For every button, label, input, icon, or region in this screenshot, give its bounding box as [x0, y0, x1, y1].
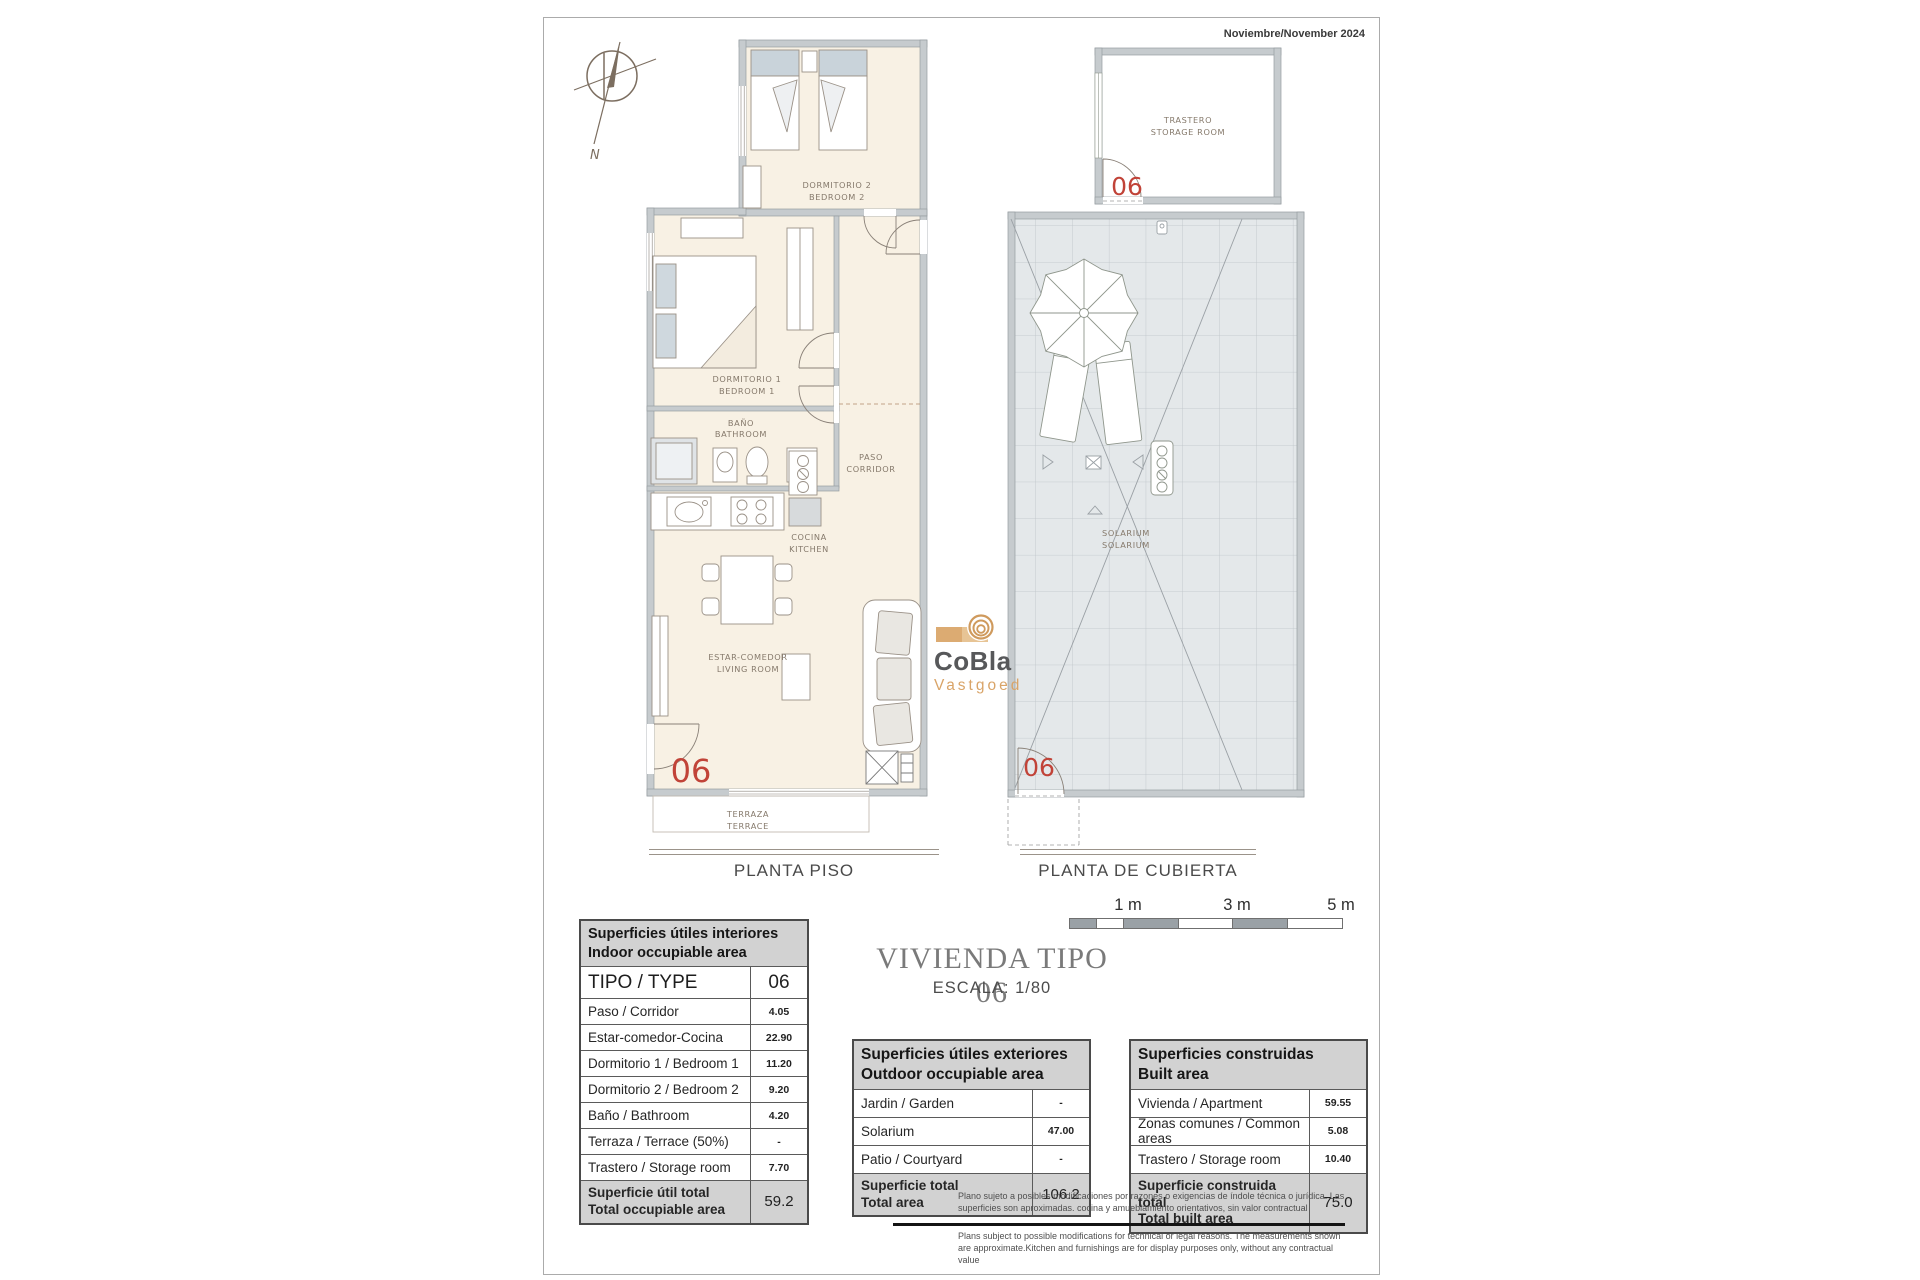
logo: CoBla Vastgoed — [934, 612, 1024, 695]
disclaimer-es: Plano sujeto a posibles modificaciones p… — [958, 1190, 1346, 1214]
scale-bar — [1069, 918, 1343, 929]
table-row: Baño / Bathroom4.20 — [581, 1103, 807, 1129]
disclaimer-divider — [893, 1223, 1345, 1226]
svg-text:KITCHEN: KITCHEN — [789, 544, 829, 554]
disclaimer-en: Plans subject to possible modifications … — [958, 1230, 1346, 1266]
table-row: Dormitorio 2 / Bedroom 29.20 — [581, 1077, 807, 1103]
table-row: Estar-comedor-Cocina22.90 — [581, 1025, 807, 1051]
roof-ladder — [1151, 441, 1173, 495]
roof-plan-caption: PLANTA DE CUBIERTA — [1020, 861, 1256, 881]
svg-text:STORAGE ROOM: STORAGE ROOM — [1151, 127, 1225, 137]
table-row: Patio / Courtyard- — [854, 1146, 1089, 1174]
svg-text:SOLARIUM: SOLARIUM — [1102, 528, 1150, 538]
table-row: Terraza / Terrace (50%)- — [581, 1129, 807, 1155]
floor-plan-rule — [649, 849, 939, 855]
table-total-row: Superficie útil totalTotal occupiable ar… — [581, 1181, 807, 1223]
exterior-table-header: Superficies útiles exteriores Outdoor oc… — [854, 1041, 1089, 1090]
floor-plan-caption: PLANTA PISO — [649, 861, 939, 881]
svg-text:COCINA: COCINA — [791, 532, 827, 542]
table-row: TIPO / TYPE 06 — [581, 967, 807, 999]
svg-text:DORMITORIO 1: DORMITORIO 1 — [713, 374, 782, 384]
svg-text:BEDROOM 1: BEDROOM 1 — [719, 386, 775, 396]
scale-label-1m: 1 m — [1098, 896, 1158, 915]
scale-label-3m: 3 m — [1207, 896, 1267, 915]
parasol-icon — [1030, 259, 1138, 367]
sheet-scale: ESCALA: 1/80 — [862, 979, 1122, 998]
sheet-date: Noviembre/November 2024 — [1224, 28, 1365, 40]
built-table-header: Superficies construidas Built area — [1131, 1041, 1366, 1090]
svg-text:CORRIDOR: CORRIDOR — [846, 464, 895, 474]
table-row: Solarium47.00 — [854, 1118, 1089, 1146]
svg-text:DORMITORIO 2: DORMITORIO 2 — [803, 180, 872, 190]
svg-text:PASO: PASO — [859, 452, 883, 462]
scale-label-5m: 5 m — [1311, 896, 1371, 915]
svg-text:BEDROOM 2: BEDROOM 2 — [809, 192, 865, 202]
floor-plan: DORMITORIO 2 BEDROOM 2 DORMITORIO 1 BEDR… — [639, 38, 929, 838]
table-row: Jardin / Garden- — [854, 1090, 1089, 1118]
solarium-unit-number: 06 — [1023, 753, 1055, 782]
interior-table-header: Superficies útiles interiores Indoor occ… — [581, 921, 807, 967]
table-row: Vivienda / Apartment59.55 — [1131, 1090, 1366, 1118]
table-row: Dormitorio 1 / Bedroom 111.20 — [581, 1051, 807, 1077]
interior-areas-table: Superficies útiles interiores Indoor occ… — [579, 919, 809, 1225]
table-row: Paso / Corridor4.05 — [581, 999, 807, 1025]
table-row: Zonas comunes / Common areas5.08 — [1131, 1118, 1366, 1146]
storage-unit-number: 06 — [1111, 172, 1143, 201]
logo-name: CoBla — [934, 646, 1024, 677]
table-row: Trastero / Storage room10.40 — [1131, 1146, 1366, 1174]
svg-text:ESTAR-COMEDOR: ESTAR-COMEDOR — [708, 652, 787, 662]
plan-sheet: Noviembre/November 2024 N — [543, 17, 1380, 1275]
logo-subtitle: Vastgoed — [934, 677, 1024, 695]
utility-shaft — [866, 751, 913, 784]
table-row: Trastero / Storage room7.70 — [581, 1155, 807, 1181]
svg-text:BAÑO: BAÑO — [728, 418, 754, 428]
sheet-title: VIVIENDA TIPO 06 — [862, 942, 1122, 1010]
svg-text:TERRAZA: TERRAZA — [726, 809, 769, 819]
svg-text:TERRACE: TERRACE — [726, 821, 769, 831]
svg-text:LIVING ROOM: LIVING ROOM — [717, 664, 779, 674]
svg-text:BATHROOM: BATHROOM — [715, 429, 767, 439]
compass-n-label: N — [590, 148, 600, 163]
logo-mark-icon — [936, 612, 1012, 646]
floor-unit-number: 06 — [671, 752, 712, 790]
roof-plan-rule — [1020, 849, 1256, 855]
svg-text:SOLARIUM: SOLARIUM — [1102, 540, 1150, 550]
roof-plan: TRASTERO STORAGE ROOM SOLARIUM SOLARIUM … — [999, 43, 1309, 863]
svg-text:TRASTERO: TRASTERO — [1163, 115, 1212, 125]
